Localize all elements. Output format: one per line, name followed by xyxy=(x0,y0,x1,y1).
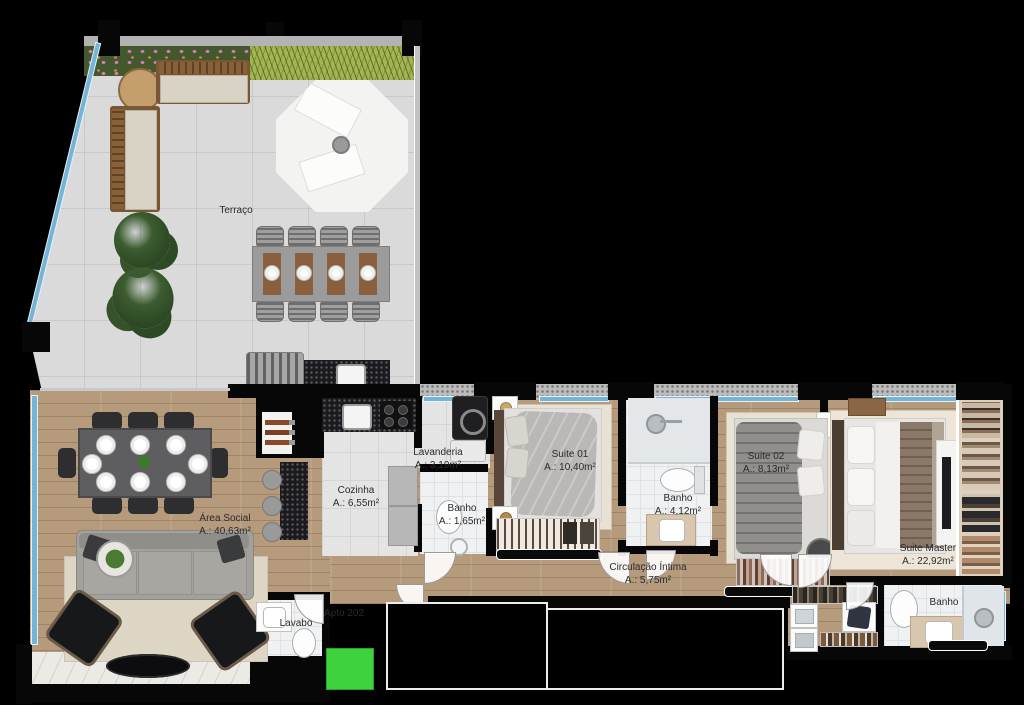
dining-chair xyxy=(92,496,122,514)
terrace-chair xyxy=(320,226,348,246)
sink xyxy=(342,404,372,430)
room-label-area-social: Área Social A.: 40,63m² xyxy=(173,512,277,538)
duvet xyxy=(736,422,802,554)
room-area: A.: 5,75m² xyxy=(588,574,708,587)
room-label-suite-master: Suite Master A.: 22,92m² xyxy=(868,542,988,568)
window-left xyxy=(32,396,37,644)
plate xyxy=(360,265,376,281)
suite1-sliding-door xyxy=(496,549,602,560)
terrace-chair xyxy=(256,302,284,322)
room-label-banho-servico: Banho A.: 1,65m² xyxy=(412,502,512,528)
room-label-banho-suites: Banho A.: 4,12m² xyxy=(628,492,728,518)
plate xyxy=(82,454,102,474)
master-bath-window xyxy=(928,640,988,651)
window xyxy=(540,397,608,401)
suite2-bed xyxy=(734,418,826,558)
shower-area xyxy=(628,398,710,464)
plate xyxy=(96,435,116,455)
terrace-chair xyxy=(288,302,316,322)
dining-table xyxy=(78,428,212,498)
dining-chair xyxy=(128,496,158,514)
toilet-tank xyxy=(694,466,705,494)
plate xyxy=(328,265,344,281)
room-name: Lavanderia xyxy=(388,446,488,459)
terrace-right-edge xyxy=(414,46,420,386)
terrace-dining-table xyxy=(252,246,390,302)
room-area: A.: 22,92m² xyxy=(868,555,988,568)
plate xyxy=(96,472,116,492)
room-label-banho-master: Banho xyxy=(914,596,974,609)
folded-towels xyxy=(795,633,814,648)
plate xyxy=(264,265,280,281)
burner xyxy=(398,405,408,415)
burner xyxy=(384,405,394,415)
room-label-suite-01: Suite 01 A.: 10,40m² xyxy=(520,448,620,474)
room-name: Suite 02 xyxy=(716,450,816,463)
wall-top-left-column xyxy=(98,20,120,56)
neighbor-unit-outline xyxy=(386,602,548,690)
room-label-cozinha: Cozinha A.: 6,55m² xyxy=(306,484,406,510)
room-label-circulacao: Circulação Íntima A.: 5,75m² xyxy=(588,561,708,587)
room-name: Banho xyxy=(412,502,512,515)
skewer xyxy=(265,420,295,425)
pergola-post xyxy=(332,136,350,154)
bench-slats xyxy=(159,62,247,74)
room-name: Suite 01 xyxy=(520,448,620,461)
room-name: Cozinha xyxy=(306,484,406,497)
bbq-block xyxy=(256,388,324,458)
bar-counter xyxy=(280,462,308,540)
room-area: A.: 6,55m² xyxy=(306,497,406,510)
master-bench xyxy=(848,398,886,416)
room-name: Banho xyxy=(628,492,728,505)
neighbor-unit-outline xyxy=(546,608,784,690)
pillow xyxy=(847,468,875,506)
bench-cushion xyxy=(125,110,157,210)
terrace-chair xyxy=(352,302,380,322)
master-bed xyxy=(832,418,944,552)
tv xyxy=(942,457,951,529)
closet-shelf xyxy=(962,494,1000,532)
room-label-lavanderia: Lavanderia A.: 3,19m² xyxy=(388,446,488,472)
floor-transition xyxy=(40,388,230,391)
terrace-bench-vertical xyxy=(110,106,160,212)
terrace-chair xyxy=(256,226,284,246)
unit-number: Apto 202 xyxy=(312,607,376,620)
folded-towels xyxy=(795,609,814,624)
sink xyxy=(659,519,685,542)
lounge-chair xyxy=(299,144,366,193)
pillow xyxy=(504,415,530,448)
room-area: A.: 8,13m² xyxy=(716,463,816,476)
toilet xyxy=(292,628,316,658)
closet-box xyxy=(790,604,818,628)
wall-right xyxy=(1002,384,1012,588)
plate xyxy=(296,265,312,281)
toilet xyxy=(660,468,696,492)
plate xyxy=(188,454,208,474)
room-area: A.: 40,63m² xyxy=(173,525,277,538)
burner xyxy=(398,417,408,427)
unit-label: Apto 202 xyxy=(312,607,376,620)
headboard xyxy=(494,410,504,514)
wall-column xyxy=(956,382,1004,400)
wall-top-mid-column xyxy=(266,22,284,36)
bbq-niche xyxy=(262,412,292,454)
plate xyxy=(130,435,150,455)
bar-stool xyxy=(262,470,282,490)
coffee-table xyxy=(106,654,190,678)
sheet xyxy=(876,422,900,548)
wall-column xyxy=(22,322,50,352)
shower-head xyxy=(974,608,994,628)
shower-head xyxy=(646,414,666,434)
palm-plant xyxy=(114,212,170,268)
side-table-plant xyxy=(96,540,134,578)
floor-plan: Terraço Área Social A.: 40,63m² Cozinha … xyxy=(0,0,1024,705)
bath-vanity xyxy=(646,514,696,546)
terrace-bench-horizontal xyxy=(156,60,250,104)
washer xyxy=(452,396,488,440)
room-name: Área Social xyxy=(173,512,277,525)
room-area: A.: 1,65m² xyxy=(412,515,512,528)
bench-cushion xyxy=(160,75,248,103)
window xyxy=(874,397,956,401)
skewer xyxy=(265,440,295,445)
terrace-chair xyxy=(288,226,316,246)
room-area: A.: 4,12m² xyxy=(628,505,728,518)
burner xyxy=(384,417,394,427)
closet-box xyxy=(790,628,818,652)
sofa-cushion xyxy=(138,551,192,595)
terrace-chair xyxy=(320,302,348,322)
bench-slats xyxy=(112,109,124,209)
plate xyxy=(166,472,186,492)
skewer xyxy=(265,430,295,435)
plate xyxy=(166,435,186,455)
centerpiece-plant xyxy=(138,456,150,468)
shoe-row xyxy=(820,632,878,647)
room-area: A.: 10,40m² xyxy=(520,461,620,474)
kitchen-counter xyxy=(322,398,416,432)
room-label-terraco: Terraço xyxy=(180,204,292,217)
dining-chair xyxy=(58,448,76,478)
shower-arm xyxy=(660,420,682,423)
folded-clothes xyxy=(563,522,577,544)
tv-panel xyxy=(936,440,958,546)
washer-door xyxy=(460,409,486,435)
closet-shelf xyxy=(962,442,1000,490)
dining-chair xyxy=(210,448,228,478)
green-unit-marker xyxy=(326,648,374,690)
room-name: Suite Master xyxy=(868,542,988,555)
cooktop xyxy=(380,401,412,429)
fern-planter xyxy=(250,46,414,80)
closet-shelf xyxy=(962,402,1000,438)
plate xyxy=(130,472,150,492)
pillow xyxy=(847,510,875,546)
blanket xyxy=(900,422,932,548)
folded-clothes xyxy=(580,522,594,544)
room-name: Terraço xyxy=(180,204,292,217)
room-name: Circulação Íntima xyxy=(588,561,708,574)
master-shower xyxy=(962,586,1004,646)
room-label-suite-02: Suite 02 A.: 8,13m² xyxy=(716,450,816,476)
wall-bottom-left xyxy=(18,684,330,702)
room-name: Banho xyxy=(914,596,974,609)
terrace-chair xyxy=(352,226,380,246)
pillow xyxy=(847,426,875,464)
headboard xyxy=(832,420,844,550)
room-area: A.: 3,19m² xyxy=(388,459,488,472)
